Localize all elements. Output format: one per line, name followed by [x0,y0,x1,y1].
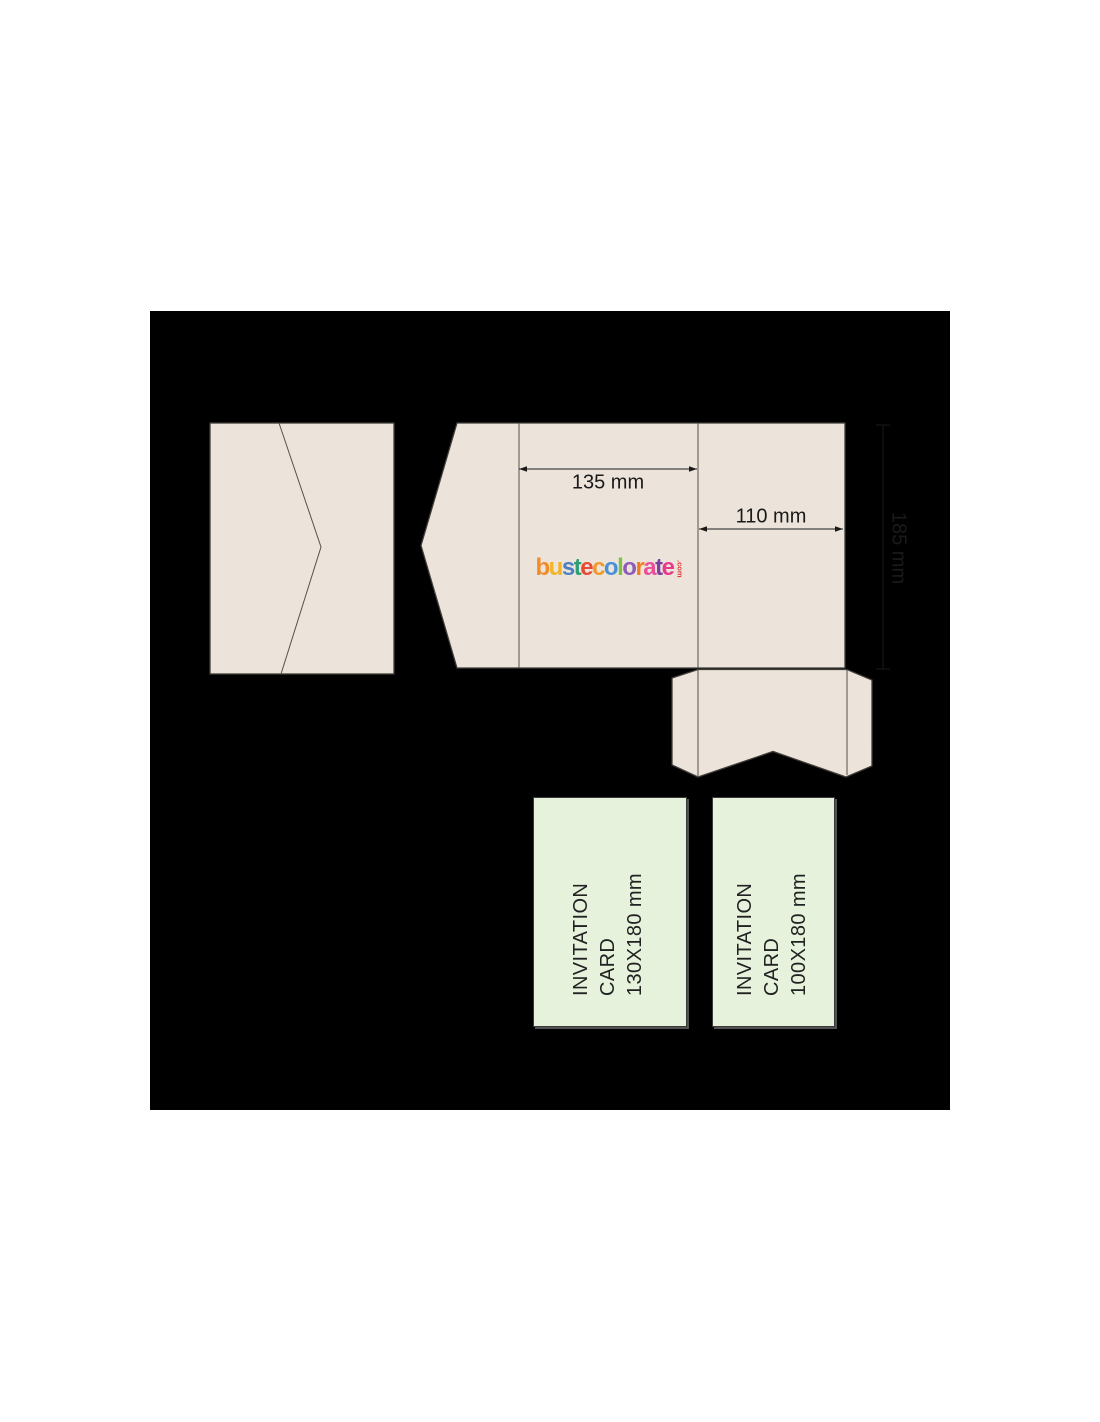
bottom-flap [672,670,872,778]
invitation-card-100x180-text: INVITATION CARD 100X180 mm [732,812,816,1012]
height-185-label: 185 mm [887,512,910,584]
card-line: INVITATION [732,812,759,996]
logo: bustecolorate .com [536,554,685,582]
width-135-label: 135 mm [572,472,644,495]
diagram-panel: 135 mm 110 mm 185 mm bustecolorate .com … [150,311,950,1110]
card-line: 100X180 mm [786,812,813,996]
logo-letters: bustecolorate [536,554,674,582]
invitation-card-100x180: INVITATION CARD 100X180 mm [712,797,835,1027]
card-line: CARD [595,812,622,996]
card-line: CARD [759,812,786,996]
page: 135 mm 110 mm 185 mm bustecolorate .com … [0,0,1100,1422]
card-line: 130X180 mm [622,812,649,996]
closed-envelope [210,423,394,674]
invitation-card-130x180: INVITATION CARD 130X180 mm [533,797,687,1027]
invitation-card-130x180-text: INVITATION CARD 130X180 mm [568,812,652,1012]
width-110-label: 110 mm [736,506,807,529]
unfolded-envelope-outline [421,423,845,668]
card-line: INVITATION [568,812,595,996]
logo-tld: .com [676,560,685,578]
